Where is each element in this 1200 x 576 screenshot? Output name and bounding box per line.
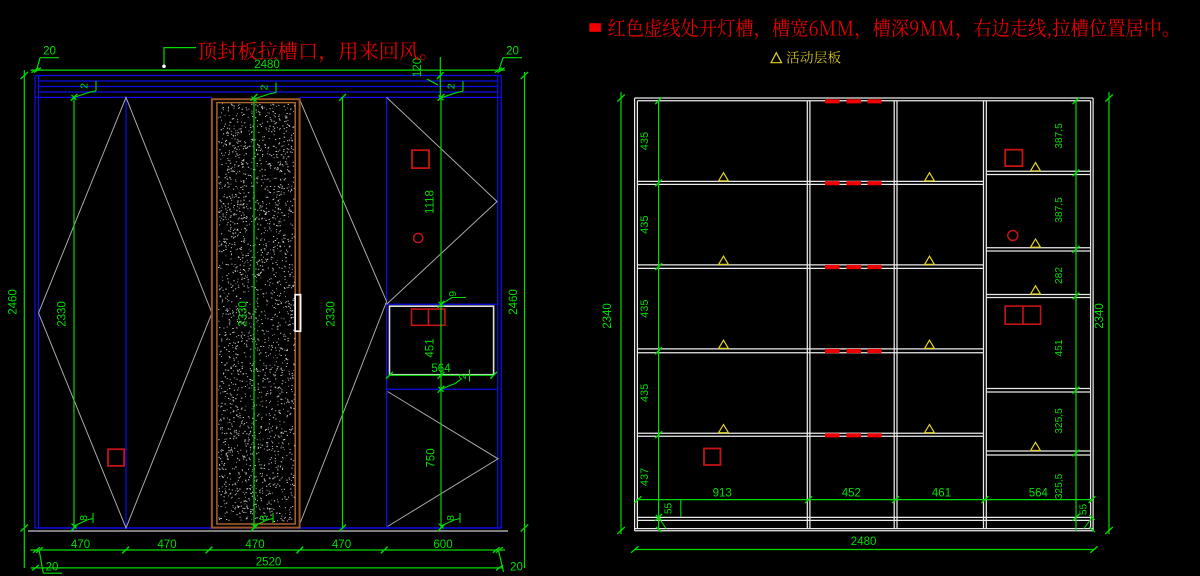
svg-text:2480: 2480 bbox=[254, 59, 280, 71]
svg-text:55: 55 bbox=[664, 503, 675, 515]
svg-text:8: 8 bbox=[78, 515, 90, 521]
svg-text:2330: 2330 bbox=[326, 301, 338, 327]
svg-text:2330: 2330 bbox=[238, 301, 250, 327]
svg-text:20: 20 bbox=[506, 46, 519, 58]
svg-text:2520: 2520 bbox=[256, 557, 282, 569]
svg-text:2340: 2340 bbox=[602, 303, 614, 329]
svg-text:2: 2 bbox=[79, 83, 91, 89]
svg-text:750: 750 bbox=[426, 448, 438, 467]
svg-text:2340: 2340 bbox=[1094, 303, 1106, 329]
svg-text:120: 120 bbox=[412, 58, 424, 77]
svg-text:451: 451 bbox=[425, 338, 437, 357]
svg-text:2: 2 bbox=[446, 83, 458, 89]
svg-text:913: 913 bbox=[713, 487, 732, 499]
svg-text:55: 55 bbox=[1079, 504, 1090, 516]
svg-text:325,5: 325,5 bbox=[1054, 408, 1065, 434]
svg-text:8: 8 bbox=[445, 515, 457, 521]
svg-text:435: 435 bbox=[639, 384, 651, 402]
svg-text:470: 470 bbox=[71, 539, 90, 551]
svg-text:470: 470 bbox=[245, 539, 264, 551]
svg-text:2460: 2460 bbox=[508, 289, 520, 315]
svg-text:435: 435 bbox=[639, 300, 651, 318]
svg-text:470: 470 bbox=[332, 539, 351, 551]
svg-text:8: 8 bbox=[258, 515, 270, 521]
svg-text:435: 435 bbox=[639, 216, 651, 234]
svg-text:451: 451 bbox=[1054, 339, 1065, 356]
svg-text:2: 2 bbox=[259, 84, 271, 90]
svg-text:9: 9 bbox=[447, 291, 459, 297]
svg-text:20: 20 bbox=[43, 46, 56, 58]
svg-text:282: 282 bbox=[1054, 267, 1065, 284]
svg-text:20: 20 bbox=[46, 562, 59, 574]
svg-text:461: 461 bbox=[932, 487, 951, 499]
svg-text:2480: 2480 bbox=[851, 536, 877, 548]
svg-text:600: 600 bbox=[433, 539, 452, 551]
svg-text:564: 564 bbox=[431, 363, 451, 375]
svg-text:20: 20 bbox=[510, 562, 523, 574]
svg-text:1118: 1118 bbox=[424, 190, 436, 214]
svg-text:325,5: 325,5 bbox=[1054, 473, 1065, 499]
svg-text:2: 2 bbox=[457, 373, 469, 379]
svg-text:387,5: 387,5 bbox=[1054, 123, 1065, 149]
svg-text:470: 470 bbox=[157, 539, 176, 551]
svg-text:387,5: 387,5 bbox=[1054, 197, 1065, 223]
svg-text:435: 435 bbox=[639, 132, 651, 150]
svg-text:2330: 2330 bbox=[57, 301, 69, 327]
svg-text:452: 452 bbox=[842, 487, 861, 499]
svg-text:564: 564 bbox=[1029, 487, 1049, 499]
svg-text:437: 437 bbox=[639, 468, 651, 486]
svg-text:2460: 2460 bbox=[8, 289, 20, 315]
